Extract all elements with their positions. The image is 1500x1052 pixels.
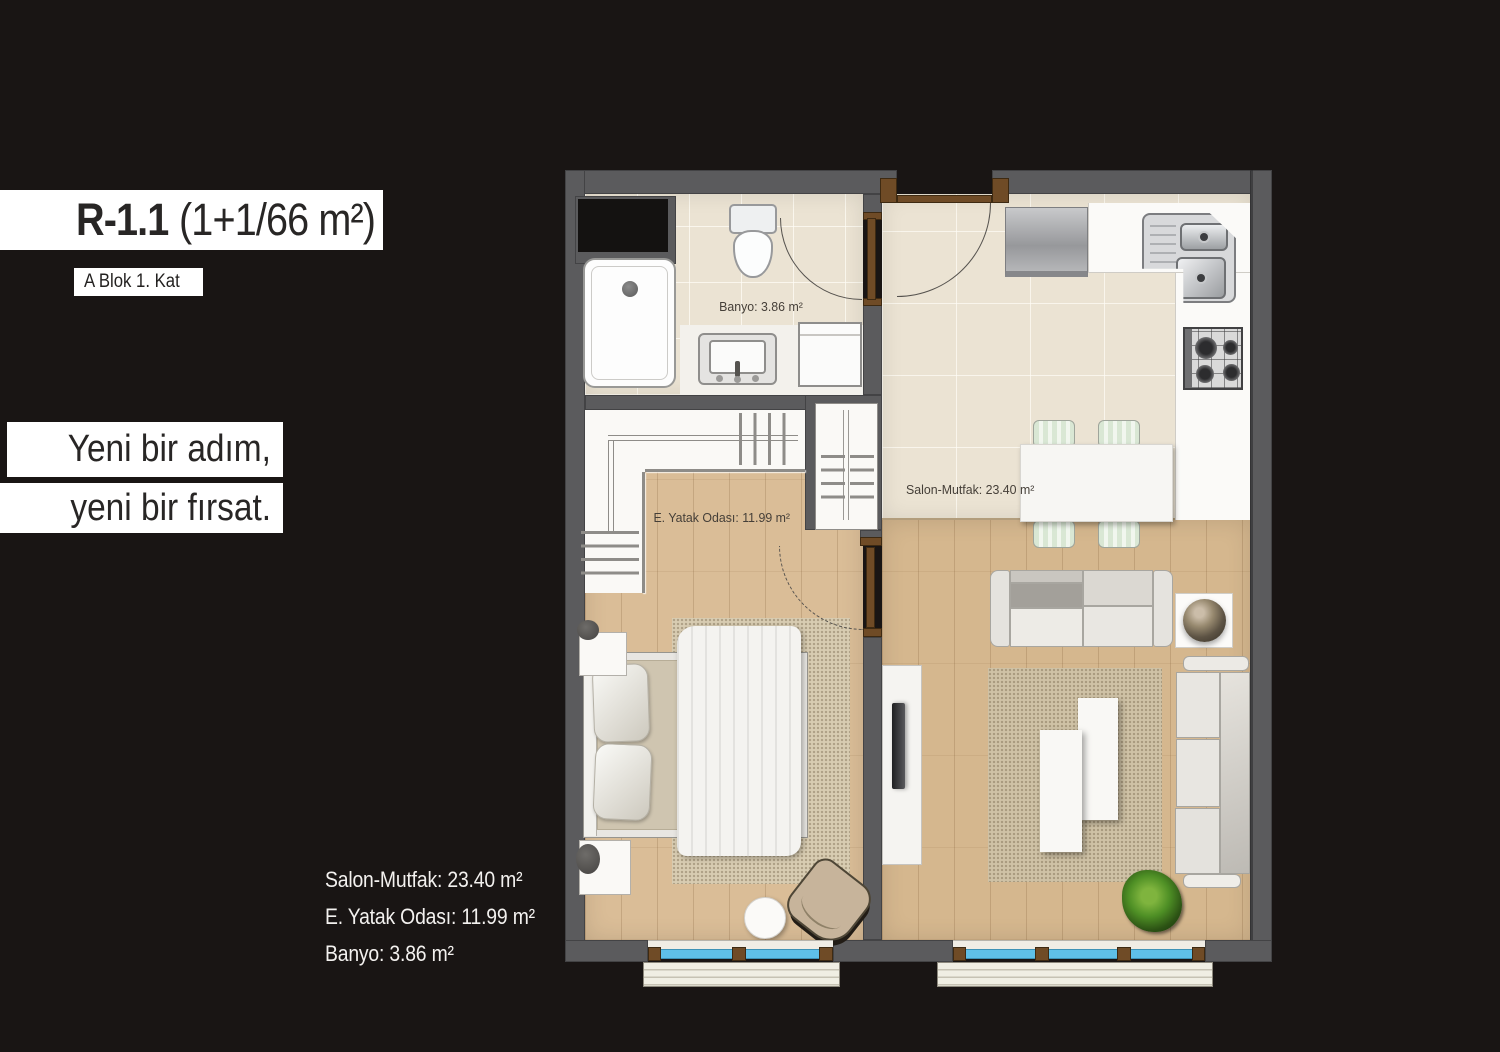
sofa [990,568,1173,648]
area-item-banyo-text: Banyo: 3.86 m² [325,941,454,967]
entrance-jamb-left [880,178,897,203]
wardrobe-front-line-h [645,469,805,472]
entrance-threshold [897,195,992,203]
kitchen-sink-drainboard [1150,225,1176,267]
wall-top-right [992,170,1272,194]
armchair-seat-line [795,885,850,937]
entrance-jamb-right [992,178,1009,203]
duvet [677,626,801,856]
room-label-yatak: E. Yatak Odası: 11.99 m² [641,510,803,525]
coffee-table-1 [1078,698,1118,820]
decor-sphere [1183,599,1226,642]
sofa-seat-left [1010,608,1083,647]
tv [892,703,905,789]
hall-closet-shelves-left [821,455,845,507]
kitchen-sink-drain-large [1197,274,1205,282]
living-window-mullion-2 [1035,947,1049,961]
wardrobe-hangers-top [739,413,791,465]
sofa-seat-right [1083,606,1153,647]
floor-plan: Banyo: 3.86 m² Salon-Mutfak: 23.40 m² E.… [565,170,1272,990]
living-window-mullion-3 [1117,947,1131,961]
vanity-knob-3 [752,375,759,382]
poster: R-1.1(1+1/66 m²) A Blok 1. Kat Yeni bir … [0,0,1500,1052]
wall-bottom-left [565,940,648,962]
pouf [744,897,786,939]
vanity-knob-2 [734,376,741,383]
tagline-line1: Yeni bir adım, [7,422,283,477]
dining-table [1020,444,1173,522]
wall-bathroom-right-lower [863,300,882,395]
living-window-mullion-4 [1192,947,1205,961]
sofa-2 [1173,656,1250,888]
area-item-yatak-text: E. Yatak Odası: 11.99 m² [325,904,535,930]
table-lamp-1 [577,620,599,640]
living-window-glass [955,949,1203,959]
washing-machine-lid-line [800,334,860,336]
bedroom-door-leaf [866,547,875,628]
sofa2-seat-2 [1176,739,1220,807]
washing-machine [798,322,862,387]
shower-drain [622,281,638,297]
living-window-sill [937,962,1213,987]
unit-code: R-1.1 [76,194,168,245]
unit-area: (1+1/66 m²) [179,194,375,245]
shower-tray [583,258,676,388]
sofa-back-band [1010,570,1083,583]
armchair-wrap [787,860,871,946]
kitchen-sink-basin-small [1180,223,1228,251]
burner-4 [1223,364,1240,381]
sofa2-back [1220,672,1250,874]
kitchen-sink-drain-small [1200,233,1208,241]
pillow-2 [592,743,652,821]
area-item-salon: Salon-Mutfak: 23.40 m² [325,867,549,893]
bedroom-window-mullion-2 [732,947,746,961]
sofa2-seat-3 [1175,808,1220,874]
cooktop-side-strip [1185,329,1192,388]
kitchen-sink-basin-large [1176,257,1226,299]
title-band: R-1.1(1+1/66 m²) [0,190,383,250]
block-floor-label: A Blok 1. Kat [74,268,203,296]
area-item-yatak: E. Yatak Odası: 11.99 m² [325,904,564,930]
page-title: R-1.1(1+1/66 m²) [76,194,375,246]
bedroom-window-mullion-3 [819,947,833,961]
burner-1 [1195,337,1217,359]
wardrobe-rail-v [608,441,614,532]
dining-chair-4 [1098,520,1140,548]
wall-right [1250,170,1272,962]
area-item-salon-text: Salon-Mutfak: 23.40 m² [325,867,522,893]
burner-3 [1196,365,1214,383]
wall-top-left [565,170,897,194]
sofa-back-cushion-left [1010,583,1083,608]
living-window-mullion-1 [953,947,966,961]
sofa-arm-left [990,570,1010,647]
room-label-banyo: Banyo: 3.86 m² [685,299,837,314]
area-item-banyo: Banyo: 3.86 m² [325,941,471,967]
shaft-void [578,199,668,252]
hall-closet-shelves-right [850,455,874,507]
bathroom-door-leaf [867,218,876,300]
bedroom-window-sill [643,962,840,987]
vanity-sink [698,333,777,385]
tagline-text1: Yeni bir adım, [68,428,271,471]
wardrobe-front-line-v [642,472,645,593]
coffee-table-2 [1040,730,1082,852]
sofa-arm-right [1153,570,1173,647]
table-lamp-2 [576,844,600,874]
wardrobe-hangers-left [581,531,639,579]
dining-chair-3 [1033,520,1075,548]
side-table [1175,593,1233,648]
bedroom-window-mullion-1 [648,947,661,961]
tagline-line2: yeni bir fırsat. [0,483,283,533]
block-floor-text: A Blok 1. Kat [84,271,180,293]
refrigerator [1005,207,1088,277]
kitchen-counter-right [1175,273,1250,520]
vanity-faucet [735,361,740,377]
bedroom-jamb-top [860,537,882,546]
sofa2-arm-bottom [1183,874,1241,888]
cooktop [1183,327,1243,390]
armchair [780,853,878,951]
bedroom-jamb-bottom [863,628,882,637]
vanity-knob-1 [716,375,723,382]
wall-bottom-right [1205,940,1272,962]
burner-2 [1223,340,1238,355]
sofa-back-cushion-right [1083,570,1153,606]
sofa2-seat-1 [1176,672,1220,738]
tagline-text2: yeni bir fırsat. [70,487,271,530]
room-label-salon: Salon-Mutfak: 23.40 m² [906,482,1034,497]
sofa2-arm-top [1183,656,1249,671]
